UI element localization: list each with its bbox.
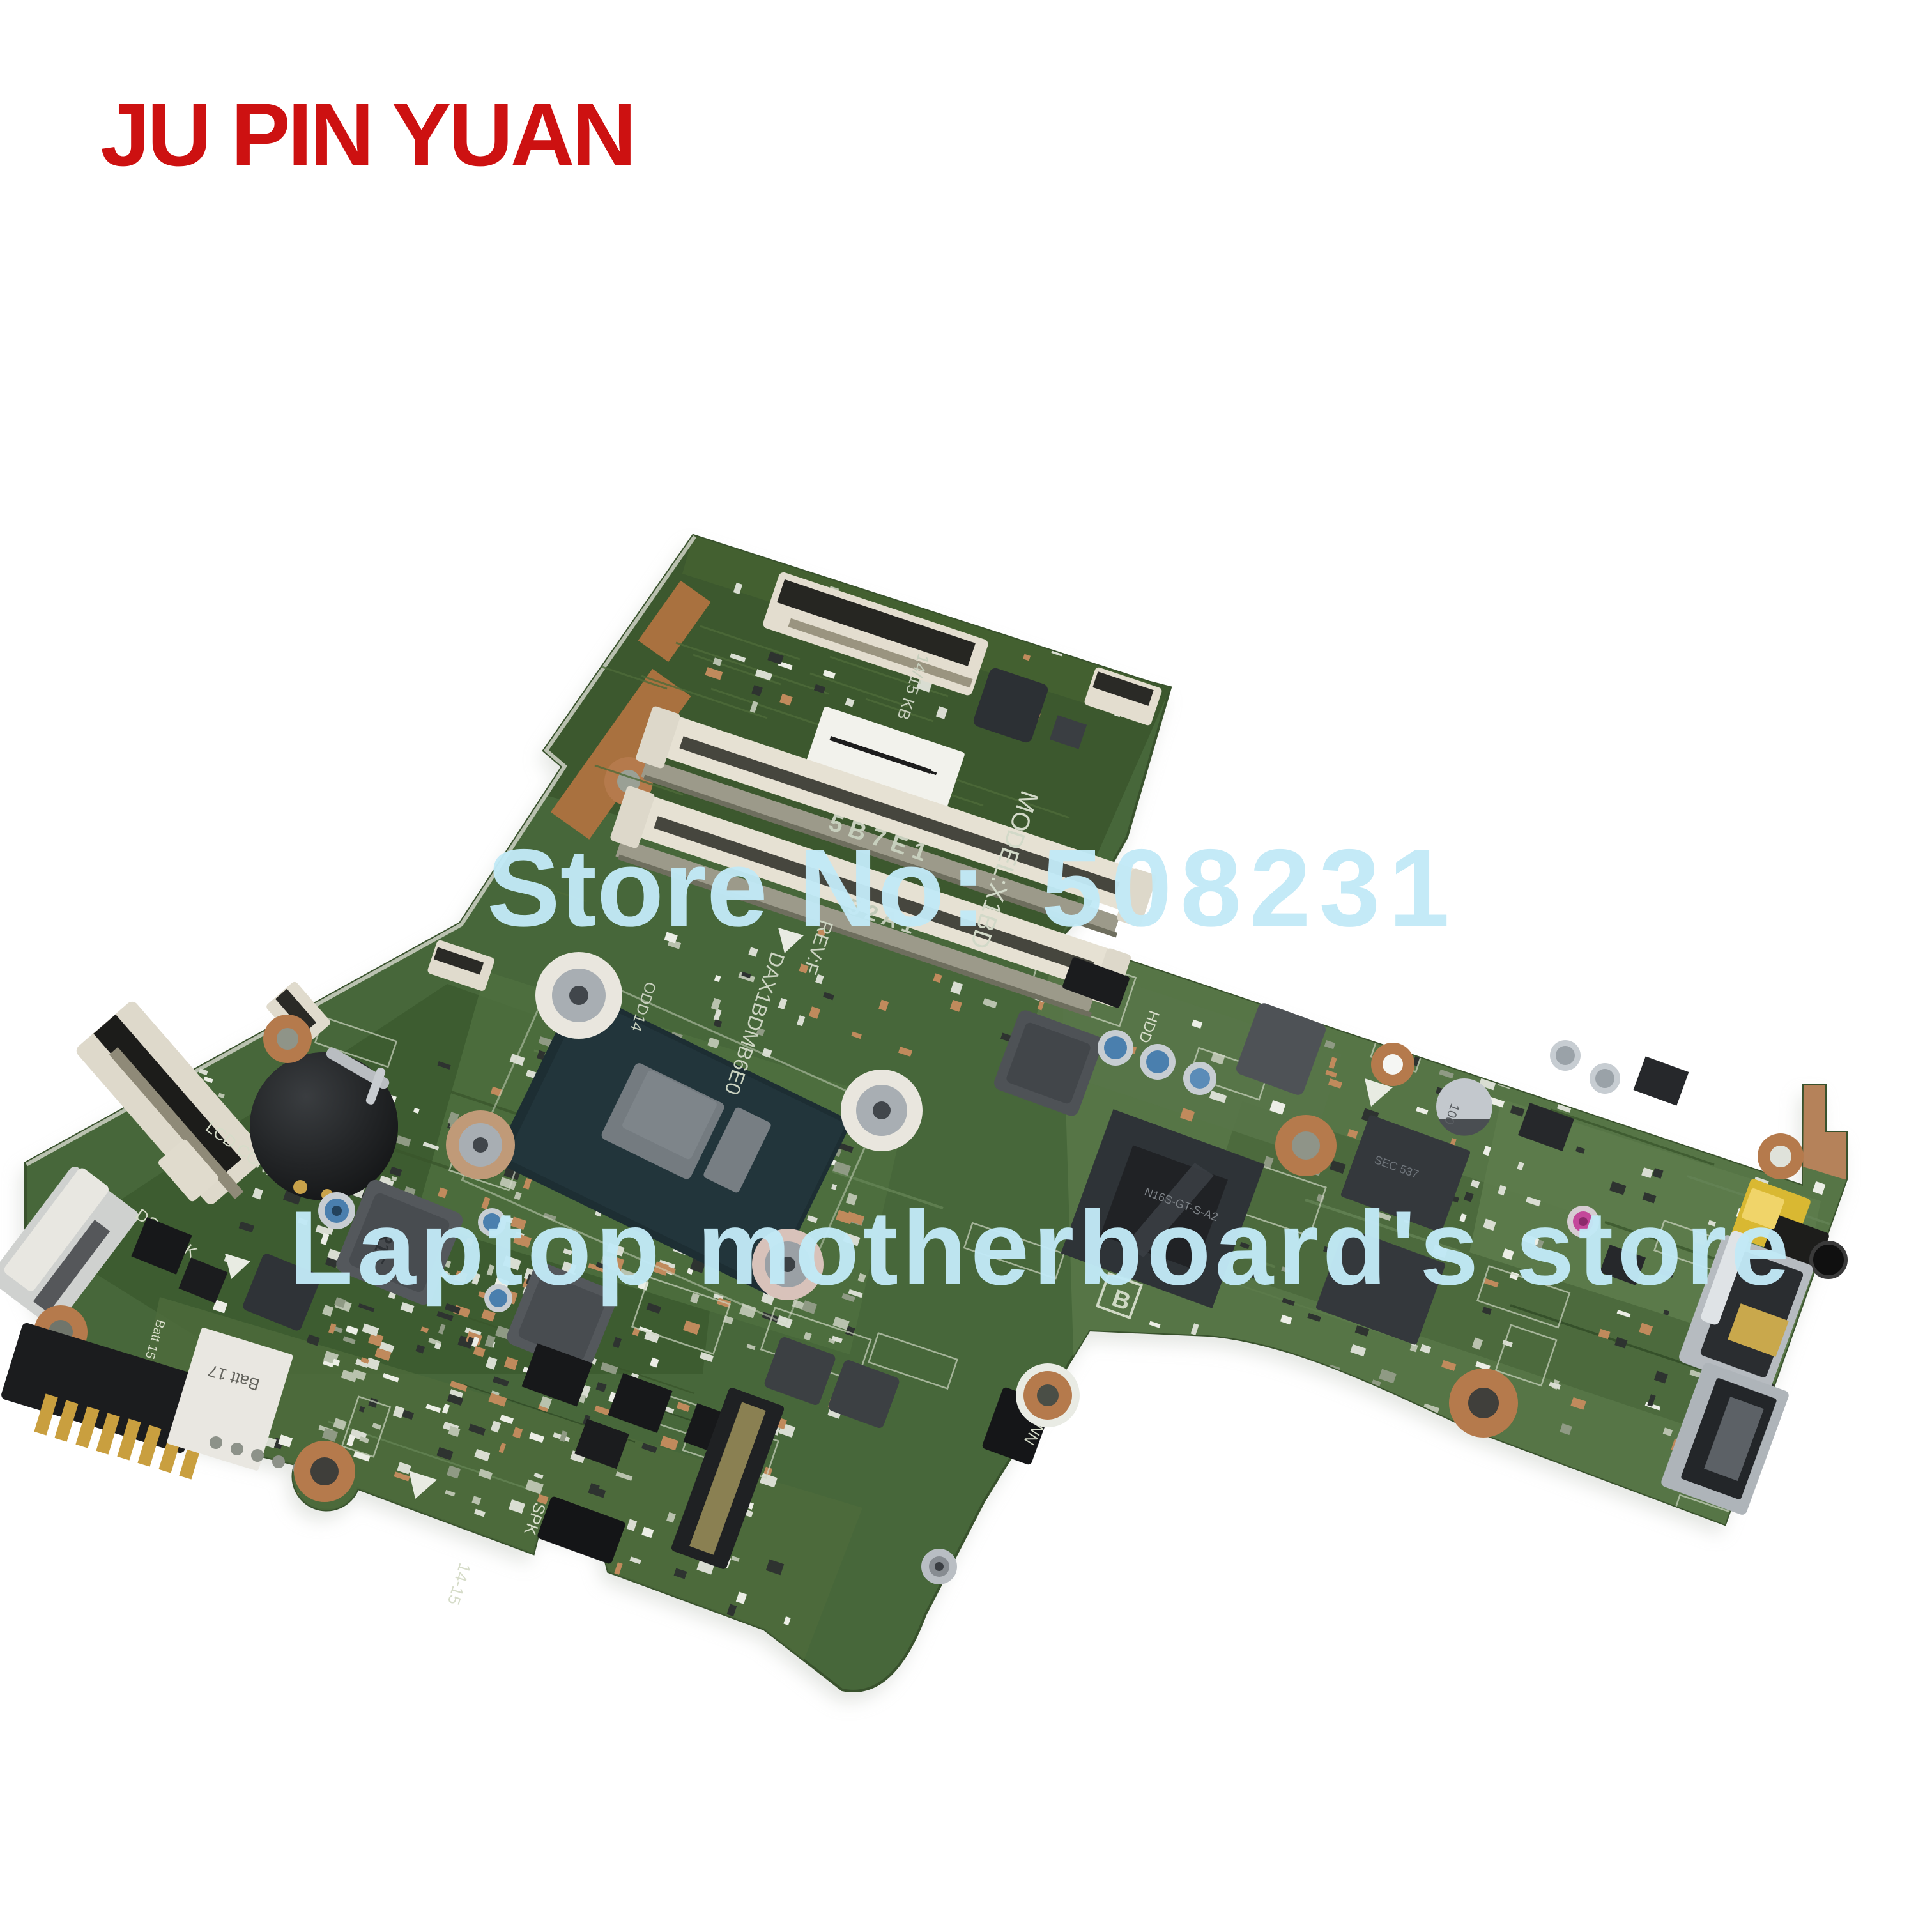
svg-text:Laptop motherboard's store: Laptop motherboard's store: [289, 1189, 1793, 1307]
svg-text:Store No:508231: Store No:508231: [487, 827, 1458, 949]
svg-text:JU PIN YUAN: JU PIN YUAN: [100, 84, 634, 185]
